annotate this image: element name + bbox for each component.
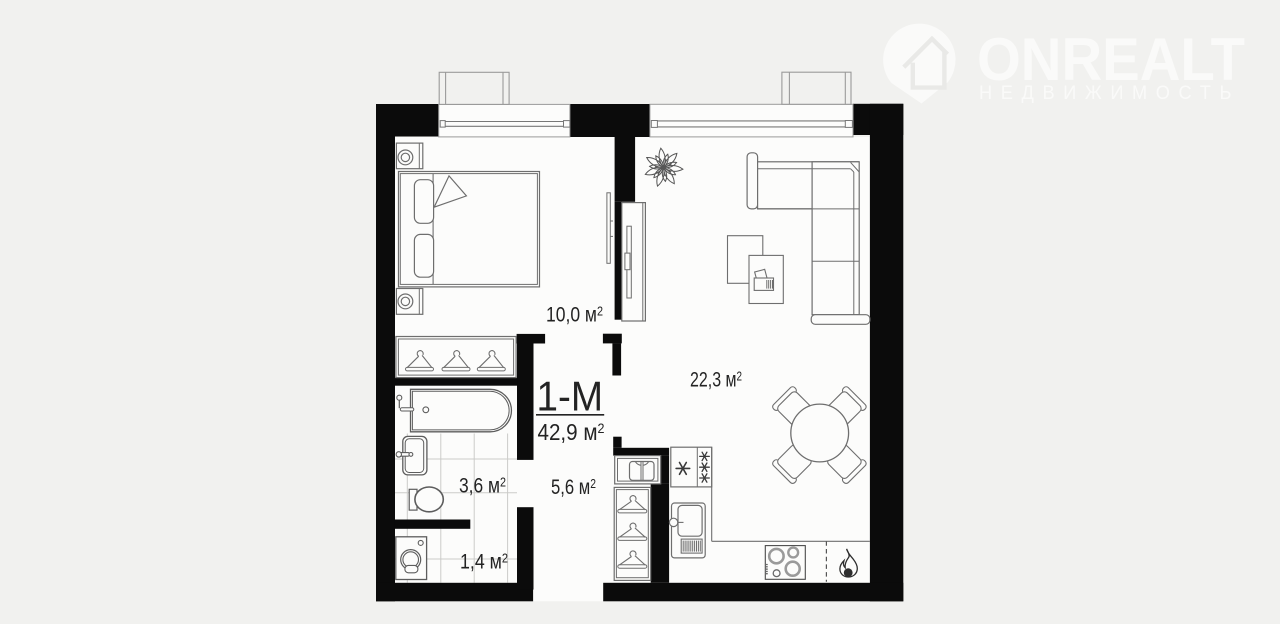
svg-text:НЕДВИЖИМОСТЬ: НЕДВИЖИМОСТЬ — [979, 83, 1240, 104]
svg-text:1,4 м2: 1,4 м2 — [460, 551, 508, 574]
svg-text:1-М: 1-М — [537, 373, 604, 420]
svg-text:3,6 м2: 3,6 м2 — [459, 475, 506, 498]
svg-text:10,0 м2: 10,0 м2 — [546, 304, 603, 327]
svg-text:22,3 м2: 22,3 м2 — [690, 369, 742, 392]
svg-text:5,6 м2: 5,6 м2 — [551, 476, 596, 499]
svg-text:42,9 м2: 42,9 м2 — [538, 419, 605, 445]
